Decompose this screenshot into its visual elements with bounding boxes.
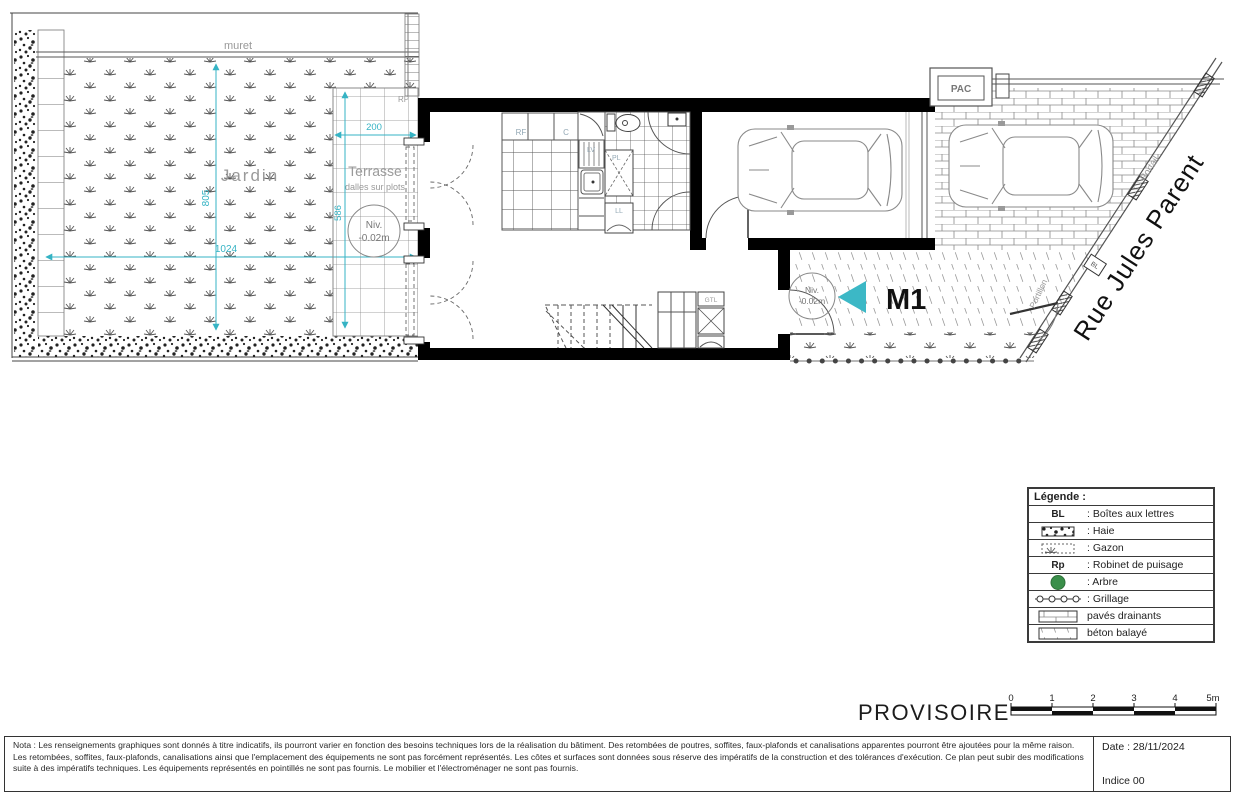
- legend-row-arbre: : Arbre: [1029, 574, 1213, 591]
- fence-post: [996, 74, 1009, 98]
- hedge-bottom: [38, 336, 418, 357]
- svg-text:Niv.: Niv.: [366, 220, 382, 231]
- legend-row-beton: béton balayé: [1029, 625, 1213, 641]
- svg-text:-0.02m: -0.02m: [799, 296, 825, 306]
- terrasse-sublabel: dalles sur plots: [345, 182, 406, 192]
- car-icon: [738, 125, 902, 215]
- hedge-swatch-icon: [1041, 526, 1075, 537]
- bl-symbol: BL: [1029, 509, 1087, 520]
- utility-closets: GTL: [658, 292, 724, 348]
- svg-text:3: 3: [1131, 693, 1136, 704]
- legend-row-haie: : Haie: [1029, 523, 1213, 540]
- kitchen-floor-tiles: [502, 140, 578, 230]
- lot-number: M1: [886, 284, 926, 316]
- legend-row-paves: pavés drainants: [1029, 608, 1213, 625]
- muret-label: muret: [224, 40, 252, 52]
- dishwasher-label: LV: [587, 147, 595, 154]
- south-wall: [418, 348, 790, 360]
- legend-box: Légende : BL : Boîtes aux lettres : Haie…: [1027, 487, 1215, 643]
- svg-text:4: 4: [1172, 693, 1177, 704]
- lawn-strip: [790, 332, 1038, 358]
- legend-title: Légende :: [1029, 489, 1213, 506]
- dim-garden-width: 1024: [215, 244, 238, 255]
- indice-field: Indice 00: [1102, 775, 1222, 787]
- concrete-swatch-icon: [1038, 627, 1078, 640]
- nota-text: Nota : Les renseignements graphiques son…: [5, 737, 1093, 791]
- toilet-tank: [607, 114, 615, 131]
- gtl-label: GTL: [705, 297, 718, 304]
- planting-strip: [38, 30, 64, 336]
- north-wall: [418, 98, 935, 112]
- dim-garden-height: 805: [201, 189, 212, 206]
- legend-row-gazon: : Gazon: [1029, 540, 1213, 557]
- scale-bar: 0 1 2 3 4 5m: [1005, 692, 1225, 718]
- grillage-icon: [1033, 594, 1083, 604]
- svg-text:0: 0: [1008, 693, 1013, 704]
- terrasse-label: Terrasse: [348, 163, 402, 179]
- legend-row-rp: Rp : Robinet de puisage: [1029, 557, 1213, 574]
- tree-icon: [1048, 575, 1068, 590]
- svg-text:5m: 5m: [1206, 693, 1219, 704]
- title-block-meta: Date : 28/11/2024 Indice 00: [1093, 737, 1230, 791]
- top-fence: [992, 79, 1224, 84]
- legend-row-grillage: : Grillage: [1029, 591, 1213, 608]
- low-wall: [36, 52, 419, 57]
- cooker-label: C: [563, 128, 569, 137]
- provisional-stamp: PROVISOIRE: [858, 700, 1010, 726]
- pavers-swatch-icon: [1038, 610, 1078, 623]
- svg-text:2: 2: [1090, 693, 1095, 704]
- dim-terrace-height: 586: [333, 205, 344, 221]
- pac-label: PAC: [951, 84, 971, 95]
- stairs: [545, 305, 652, 348]
- dim-terrace-width: 200: [366, 122, 382, 133]
- front-yard: Niv. -0.02m M1: [789, 252, 1097, 361]
- title-block: Nota : Les renseignements graphiques son…: [4, 736, 1231, 792]
- svg-text:-0.02m: -0.02m: [358, 233, 389, 244]
- svg-text:1: 1: [1049, 693, 1054, 704]
- kitchen: RF C LV: [502, 112, 605, 230]
- rp-symbol: Rp: [1029, 560, 1087, 571]
- hedge-left: [14, 30, 36, 357]
- legend-row-bl: BL : Boîtes aux lettres: [1029, 506, 1213, 523]
- jardin-label: Jardin: [221, 166, 279, 185]
- terrace: RP Terrasse dalles sur plots Niv. -0.02m…: [333, 88, 418, 336]
- drawing-sheet: muret Jardin 1024 805 RP Terrasse dalles…: [0, 0, 1236, 800]
- date-field: Date : 28/11/2024: [1102, 741, 1222, 753]
- svg-text:Niv.: Niv.: [805, 285, 819, 295]
- garage: [738, 112, 927, 238]
- wc-room: PL LL: [605, 112, 690, 233]
- brushed-concrete: [790, 252, 1097, 330]
- closet-label: PL: [612, 155, 621, 162]
- cabinet: [658, 292, 696, 348]
- lawn-swatch-icon: [1041, 543, 1075, 554]
- fridge-label: RF: [516, 128, 527, 137]
- garage-divider-wall: [690, 112, 702, 238]
- fence-strip: [405, 14, 419, 96]
- garage-door: [922, 112, 927, 238]
- car-icon: [949, 121, 1113, 211]
- washer-label: LL: [615, 208, 623, 215]
- rp-tap-label: RP: [398, 95, 409, 104]
